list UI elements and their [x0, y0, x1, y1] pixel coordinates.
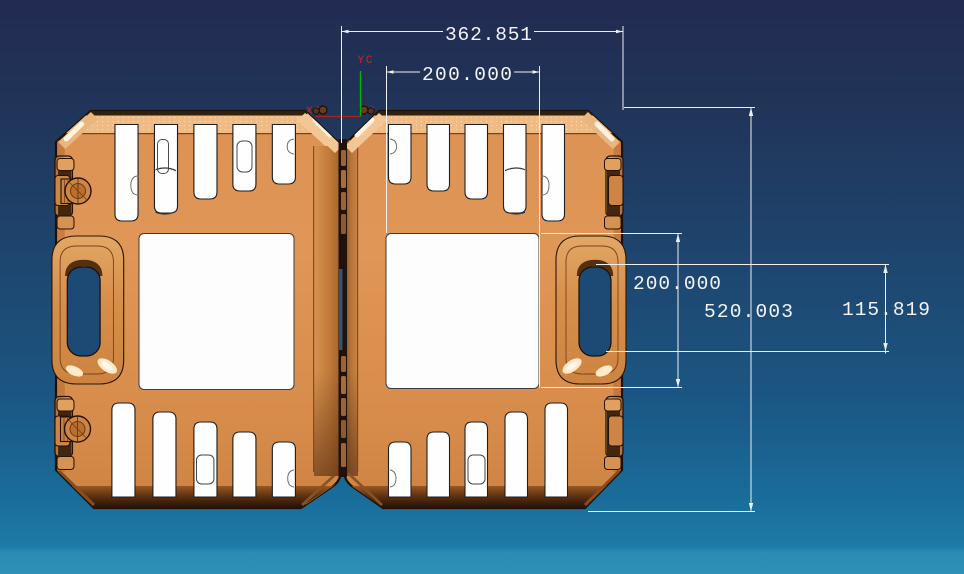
svg-text:362.851: 362.851: [445, 24, 532, 46]
svg-text:YC: YC: [358, 55, 373, 67]
svg-text:200.000: 200.000: [422, 64, 512, 86]
svg-text:115.819: 115.819: [842, 299, 930, 321]
svg-text:520.003: 520.003: [704, 301, 793, 323]
svg-text:200.000: 200.000: [633, 273, 721, 295]
